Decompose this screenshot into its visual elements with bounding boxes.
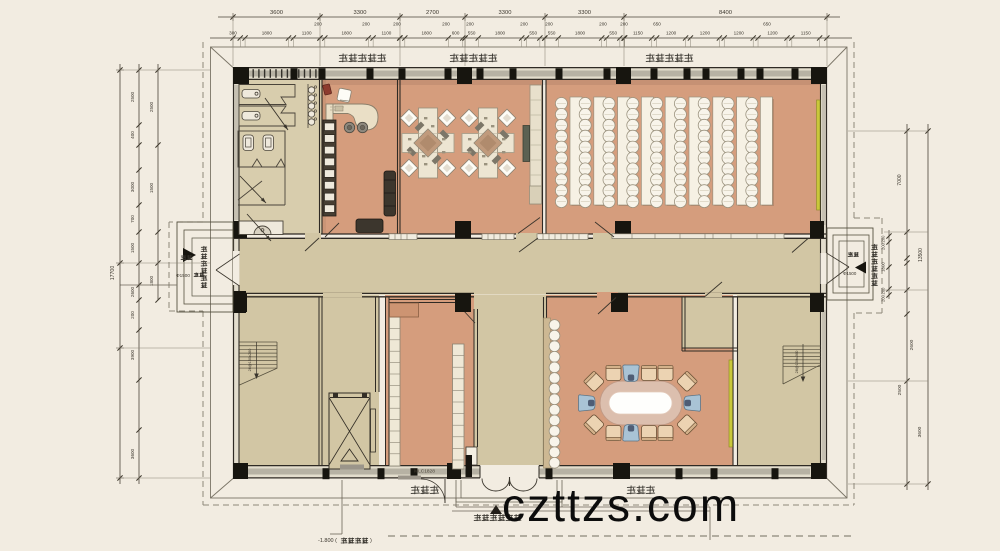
svg-text:200: 200 — [393, 22, 401, 27]
svg-text:1200: 1200 — [734, 31, 745, 36]
svg-text:3300: 3300 — [499, 10, 512, 16]
svg-text:1200: 1200 — [700, 31, 711, 36]
svg-text:700: 700 — [130, 215, 135, 223]
svg-text:czttzs.com: czttzs.com — [502, 479, 740, 531]
svg-text:Φ1500: Φ1500 — [176, 273, 190, 278]
svg-text:200: 200 — [620, 22, 628, 27]
svg-text:550: 550 — [468, 31, 476, 36]
svg-text:200: 200 — [881, 294, 886, 302]
svg-text:1200: 1200 — [666, 31, 677, 36]
svg-text:1800: 1800 — [881, 262, 886, 272]
svg-text:1800: 1800 — [341, 31, 352, 36]
svg-text:550: 550 — [609, 31, 617, 36]
svg-text:300: 300 — [229, 31, 237, 36]
svg-text:1200: 1200 — [767, 31, 778, 36]
svg-text:1150: 1150 — [801, 31, 811, 36]
svg-text:1500: 1500 — [149, 182, 154, 193]
svg-text:200: 200 — [599, 22, 607, 27]
svg-text:1100: 1100 — [302, 31, 312, 36]
svg-text:8400: 8400 — [719, 10, 732, 16]
svg-text:13500: 13500 — [918, 248, 924, 262]
svg-text:200: 200 — [520, 22, 528, 27]
svg-text:200: 200 — [545, 22, 553, 27]
svg-text:3900: 3900 — [130, 349, 135, 360]
svg-text:28@150x260: 28@150x260 — [795, 351, 799, 374]
svg-text:650: 650 — [763, 22, 771, 27]
svg-text:3600: 3600 — [130, 448, 135, 459]
svg-text:1500: 1500 — [130, 242, 135, 253]
svg-text:2500: 2500 — [130, 91, 135, 102]
svg-text:1800: 1800 — [495, 31, 506, 36]
svg-text:200: 200 — [881, 235, 886, 243]
svg-text:200: 200 — [130, 311, 135, 319]
svg-text:3300: 3300 — [578, 10, 591, 16]
svg-text:200: 200 — [466, 22, 474, 27]
svg-text:1100: 1100 — [381, 31, 391, 36]
svg-text:17700: 17700 — [110, 266, 116, 281]
svg-text:1150: 1150 — [633, 31, 643, 36]
svg-text:550: 550 — [529, 31, 537, 36]
svg-text:3000: 3000 — [130, 181, 135, 192]
svg-text:1800: 1800 — [149, 275, 154, 286]
svg-text:28@150x260: 28@150x260 — [248, 349, 252, 372]
svg-text:2600: 2600 — [130, 286, 135, 297]
svg-text:400: 400 — [130, 131, 135, 139]
svg-text:550: 550 — [548, 31, 556, 36]
svg-text:1800: 1800 — [262, 31, 273, 36]
svg-text:200: 200 — [881, 287, 886, 295]
svg-text:200: 200 — [362, 22, 370, 27]
svg-text:650: 650 — [653, 22, 661, 27]
svg-text:Φ1500: Φ1500 — [843, 271, 857, 276]
svg-text:600: 600 — [452, 31, 460, 36]
svg-text:2600: 2600 — [909, 339, 915, 350]
svg-text:1800: 1800 — [421, 31, 432, 36]
svg-text:1800: 1800 — [575, 31, 586, 36]
svg-text:7000: 7000 — [897, 174, 903, 185]
svg-text:200: 200 — [442, 22, 450, 27]
svg-text:2500: 2500 — [897, 384, 903, 395]
svg-text:): ) — [370, 538, 372, 544]
svg-text:3600: 3600 — [917, 426, 923, 437]
svg-text:MLC1828: MLC1828 — [414, 469, 435, 475]
svg-text:3600: 3600 — [270, 10, 283, 16]
svg-text:3300: 3300 — [354, 10, 367, 16]
svg-text:2700: 2700 — [426, 10, 439, 16]
svg-text:2500: 2500 — [149, 101, 154, 112]
svg-text:-1.800 (: -1.800 ( — [318, 538, 337, 544]
svg-text:200: 200 — [314, 22, 322, 27]
svg-text:200: 200 — [881, 242, 886, 250]
